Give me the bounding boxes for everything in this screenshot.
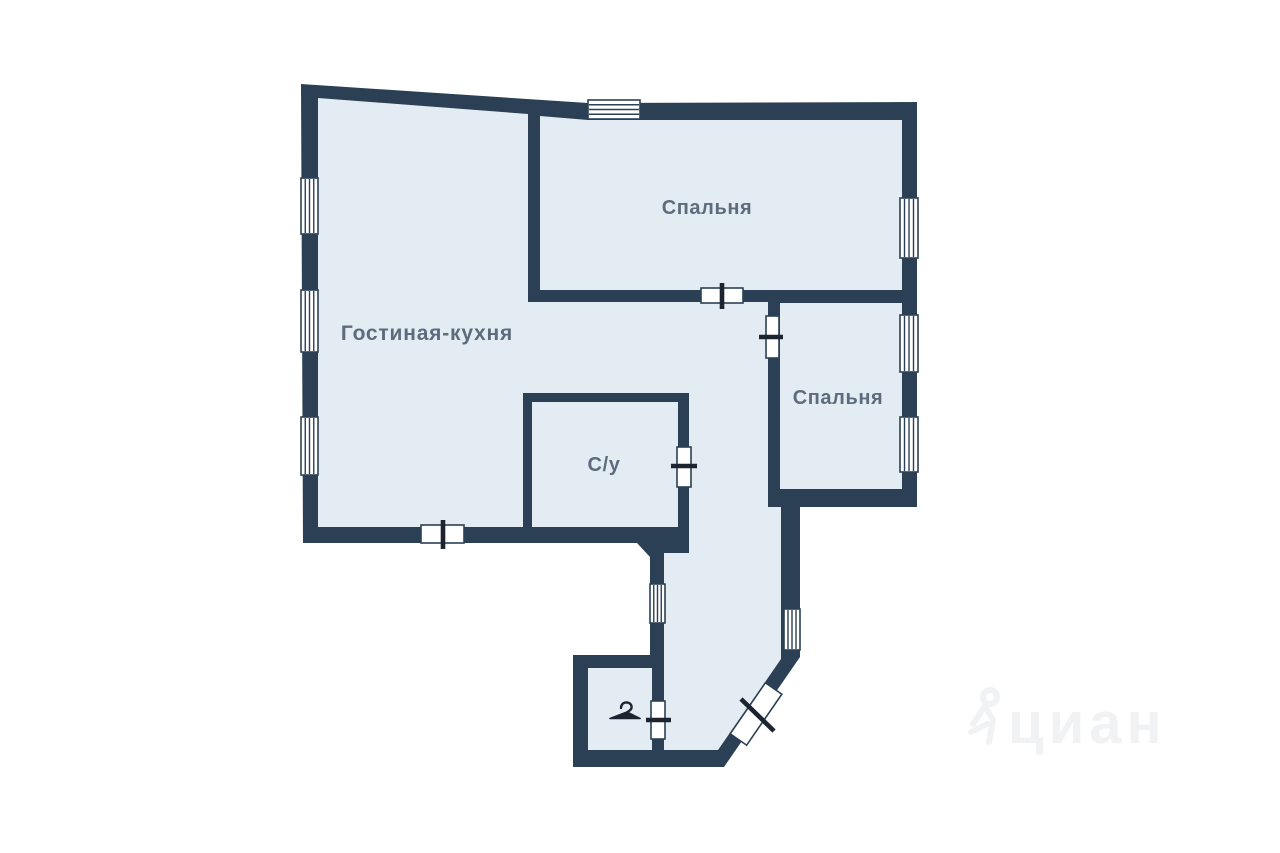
watermark-logo-icon (971, 690, 997, 742)
floor-plan-page: Гостиная-кухня Спальня Спальня С/у циан (0, 0, 1280, 853)
label-bedroom2: Спальня (793, 387, 884, 409)
window-bedroom2-right-2 (900, 417, 918, 472)
window-left-2 (301, 290, 318, 352)
label-living-room: Гостиная-кухня (341, 322, 513, 345)
watermark: циан (971, 690, 1167, 756)
window-left-1 (301, 178, 318, 234)
door-living (421, 520, 464, 549)
window-top (588, 100, 640, 119)
label-bedroom1: Спальня (662, 197, 753, 219)
window-hall-left (650, 584, 665, 623)
window-bedroom1-right (900, 198, 918, 258)
floor-plan: Гостиная-кухня Спальня Спальня С/у циан (0, 0, 1280, 853)
window-left-3 (301, 417, 318, 475)
window-hall-right (784, 609, 800, 650)
room-closet (588, 668, 652, 750)
window-bedroom2-right-1 (900, 315, 918, 372)
label-bathroom: С/у (588, 454, 621, 476)
watermark-text: циан (1008, 691, 1167, 756)
